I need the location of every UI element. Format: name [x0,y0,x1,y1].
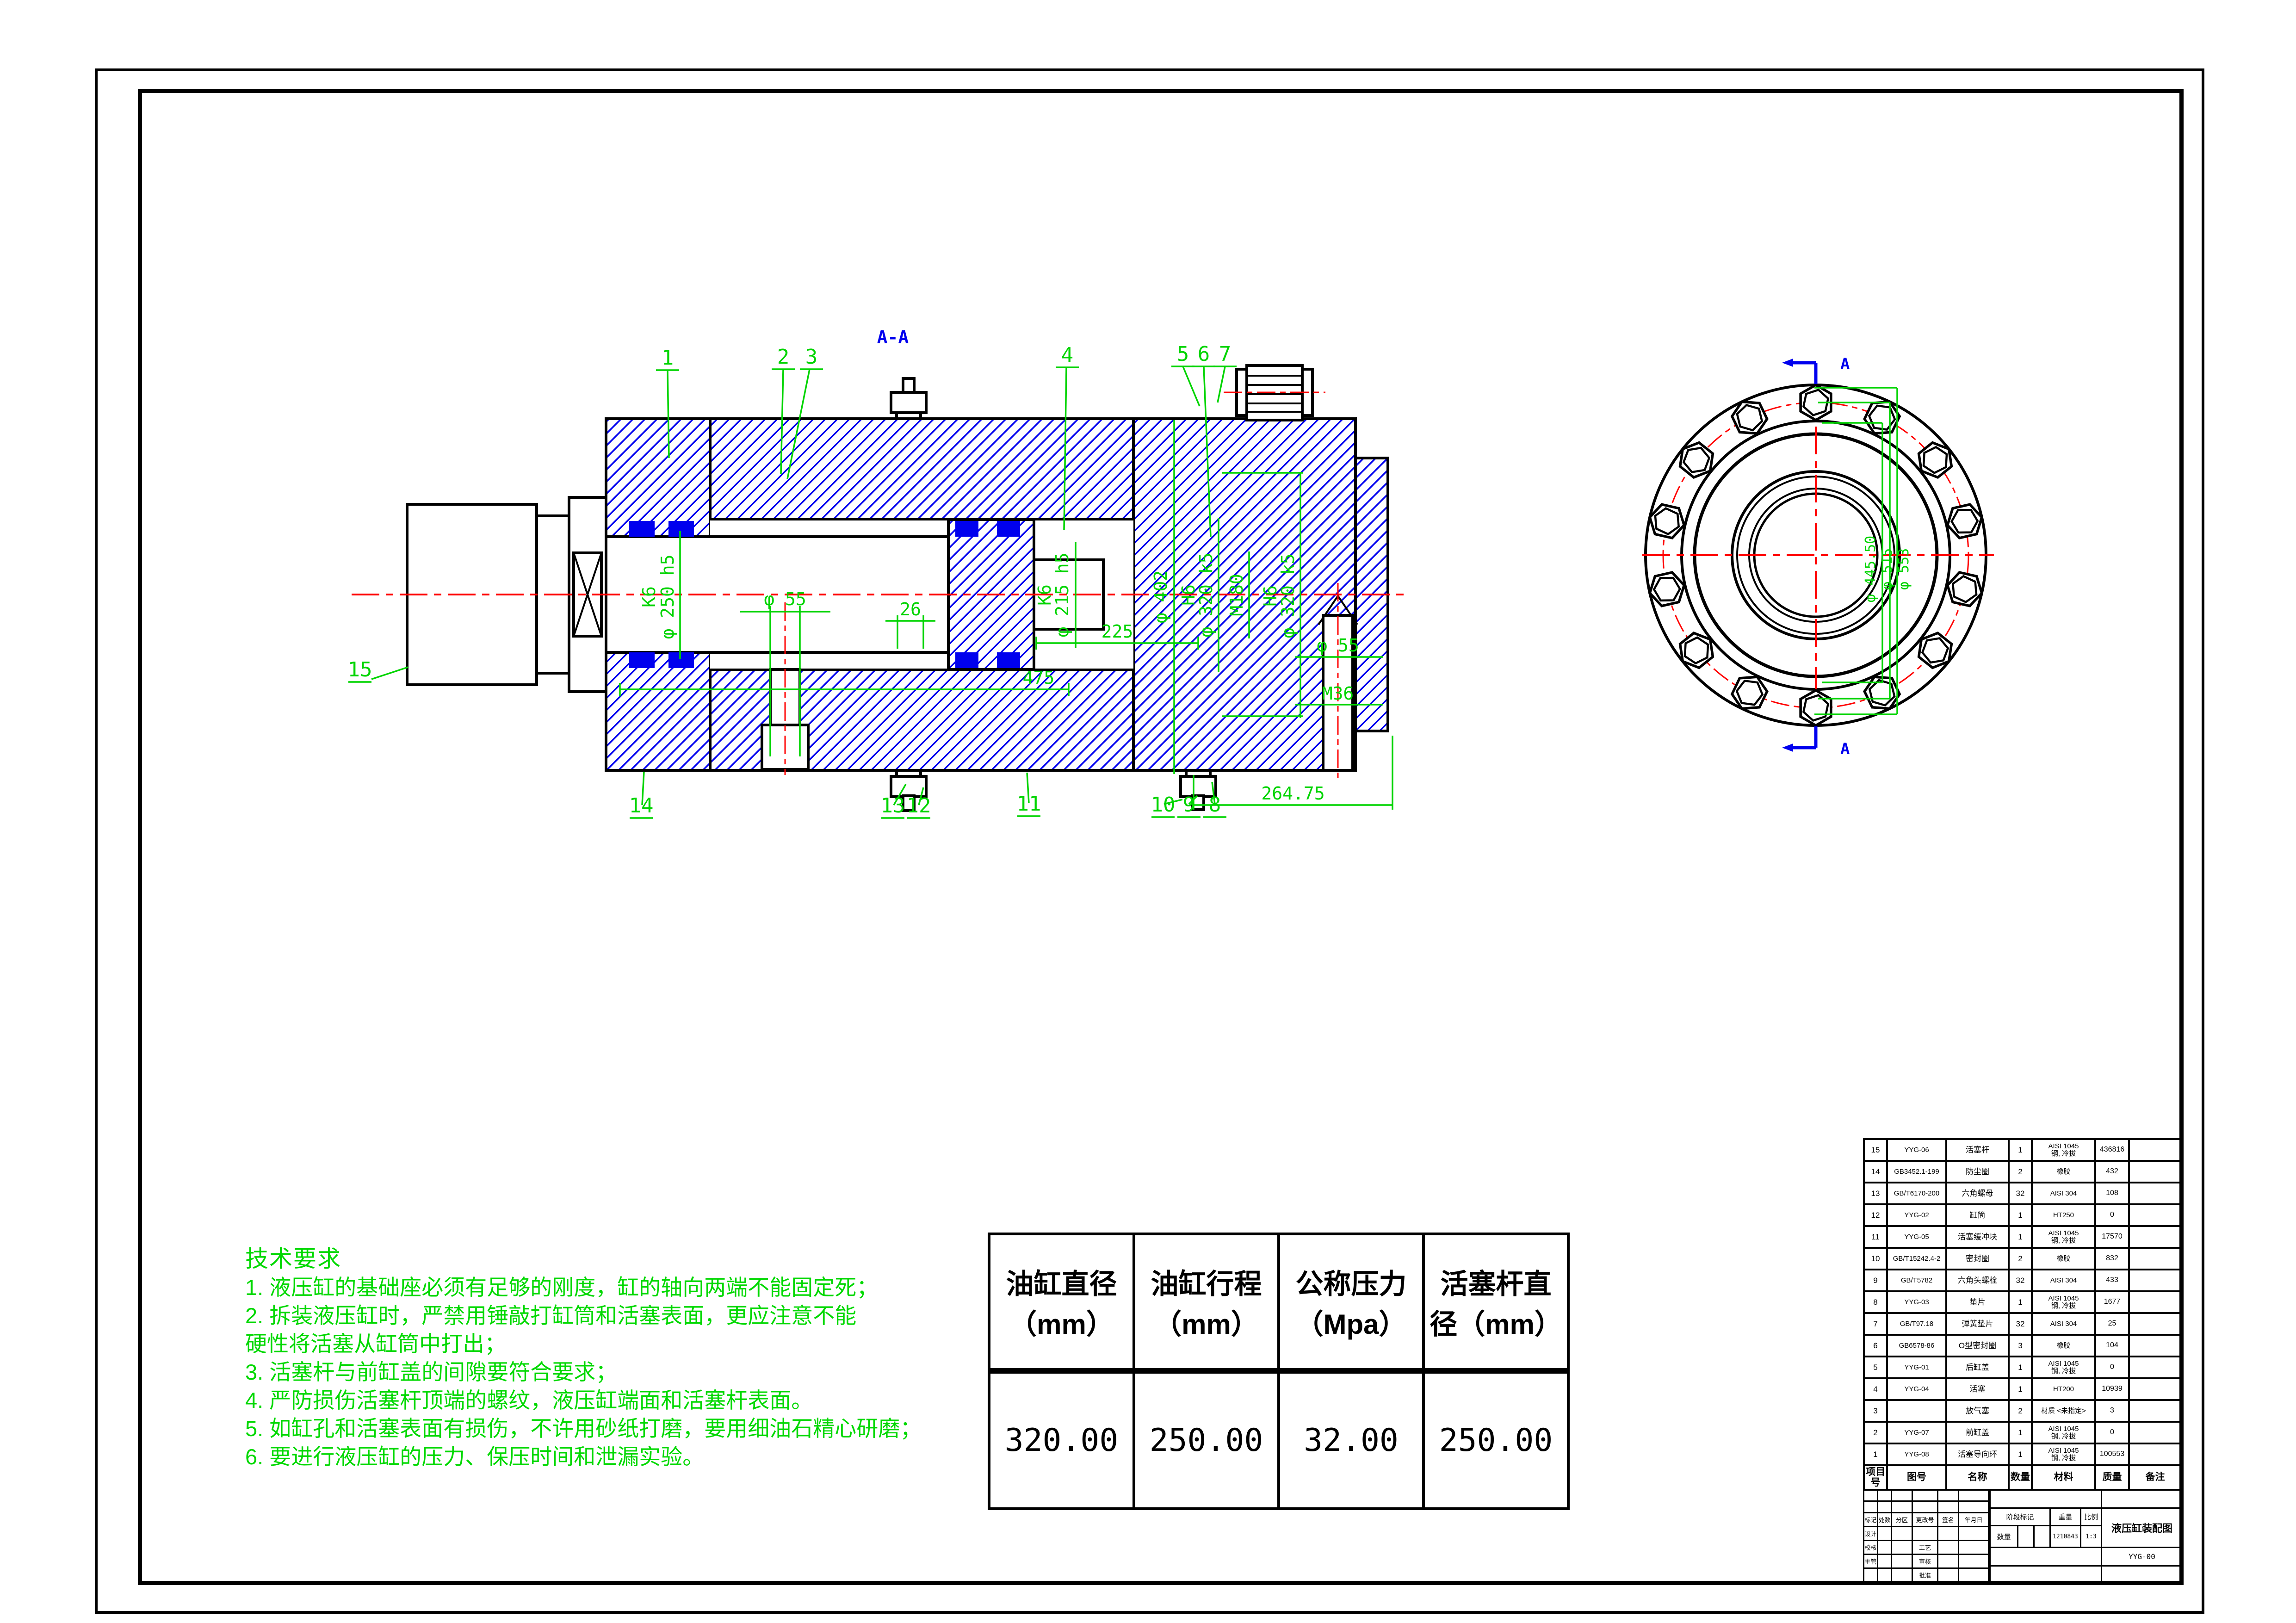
qty-label: 数量 [1990,1526,2018,1548]
hex-nut [1948,572,1982,606]
svg-text:φ 250 h5: φ 250 h5 [657,554,678,639]
bom-cell-mass: 104 [2095,1335,2129,1357]
svg-text:1: 1 [662,346,674,370]
weight-value: 1210843 [2050,1526,2081,1548]
technical-requirements: 技术要求 1. 液压缸的基础座必须有足够的刚度，缸的轴向两端不能固定死； 2. … [245,1245,995,1471]
bom-cell-name: 放气塞 [1946,1400,2009,1422]
bom-cell-no: 11 [1864,1226,1887,1248]
tech-req-title: 技术要求 [245,1245,995,1273]
bom-header-row: 项目号 图号 名称 数量 材料 质量 备注 [1864,1465,2181,1490]
bom-cell-mass: 432 [2095,1161,2129,1183]
svg-text:A: A [1840,740,1850,758]
bom-cell-material: AISI 304 [2032,1270,2095,1291]
bom-cell-no: 8 [1864,1291,1887,1313]
svg-text:13: 13 [881,794,905,818]
weight-label: 重量 [2050,1508,2081,1526]
svg-text:φ 553: φ 553 [1896,548,1912,590]
bom-cell-qty: 32 [2009,1183,2032,1204]
tech-req-line: 5. 如缸孔和活塞表面有损伤，不许用砂纸打磨，要用细油石精心研磨； [245,1414,995,1443]
drawing-number: YYG-00 [2102,1548,2183,1566]
svg-text:M36: M36 [1322,683,1354,704]
bom-cell-qty: 32 [2009,1313,2032,1335]
svg-text:10: 10 [1151,793,1176,817]
bom-cell-material: 橡胶 [2032,1248,2095,1270]
bom-cell-note [2129,1422,2181,1443]
bom-cell-material: AISI 1045 钢, 冷拔 [2032,1357,2095,1378]
bom-cell-code: GB/T15242.4-2 [1887,1248,1946,1270]
param-header-line: （Mpa） [1280,1302,1422,1342]
bom-cell-mass: 3 [2095,1400,2129,1422]
bom-cell-note [2129,1400,2181,1422]
bom-cell-mass: 108 [2095,1183,2129,1204]
bom-cell-note [2129,1378,2181,1400]
bom-cell-code: YYG-02 [1887,1204,1946,1226]
bom-cell-code: YYG-08 [1887,1443,1946,1465]
bom-body: 15YYG-06活塞杆1AISI 1045 钢, 冷拔43681614GB345… [1864,1139,2181,1465]
svg-text:φ 320 k5: φ 320 k5 [1278,553,1298,638]
tech-req-line: 3. 活塞杆与前缸盖的间隙要符合要求； [245,1358,995,1386]
bom-row: 15YYG-06活塞杆1AISI 1045 钢, 冷拔436816 [1864,1139,2181,1161]
param-header: 活塞杆直 径（mm） [1423,1234,1568,1371]
bom-cell-code: GB3452.1-199 [1887,1161,1946,1183]
bom-cell-name: 垫片 [1946,1291,2009,1313]
svg-text:φ 445.50: φ 445.50 [1863,536,1879,603]
bom-cell-material: HT200 [2032,1378,2095,1400]
stage-label: 阶段标记 [1990,1508,2050,1526]
bom-cell-no: 4 [1864,1378,1887,1400]
svg-text:12: 12 [907,794,931,818]
svg-text:4: 4 [1061,343,1074,367]
svg-text:3: 3 [805,345,818,369]
sign-label: 工艺 [1912,1541,1938,1555]
title-block-right: 阶段标记 重量 比例 液压缸装配图 数量 1210843 1:3 YYG-00 [1989,1489,2183,1583]
bom-cell-mass: 0 [2095,1422,2129,1443]
bom-cell-code: GB/T6170-200 [1887,1183,1946,1204]
rev-header: 签名 [1938,1513,1959,1527]
bom-row: 10GB/T15242.4-2密封圈2橡胶832 [1864,1248,2181,1270]
param-header-line: 油缸直径 [990,1262,1133,1302]
svg-text:φ 55: φ 55 [764,589,806,609]
drawing-title: 液压缸装配图 [2102,1508,2183,1548]
svg-text:15: 15 [348,658,372,681]
bom-cell-note [2129,1183,2181,1204]
param-value: 250.00 [1134,1371,1279,1509]
bom-cell-name: 活塞杆 [1946,1139,2009,1161]
cylinder-end-view: φ 445.50 φ 515 φ 553 A A [1642,352,2128,814]
bom-cell-code: YYG-07 [1887,1422,1946,1443]
bom-cell-no: 14 [1864,1161,1887,1183]
svg-text:M180: M180 [1226,574,1247,616]
svg-text:9: 9 [1183,793,1195,817]
bom-cell-no: 2 [1864,1422,1887,1443]
bom-cell-material: AISI 1045 钢, 冷拔 [2032,1443,2095,1465]
bom-cell-no: 15 [1864,1139,1887,1161]
hex-nut [1948,504,1982,538]
bom-cell-qty: 32 [2009,1270,2032,1291]
bom-cell-note [2129,1313,2181,1335]
rev-header: 分区 [1892,1513,1912,1527]
bom-cell-mass: 433 [2095,1270,2129,1291]
hydraulic-cylinder-section-view: A-A [324,319,1434,824]
bom-row: 7GB/T97.18弹簧垫片32AISI 30425 [1864,1313,2181,1335]
svg-text:225: 225 [1102,621,1133,642]
bom-cell-note [2129,1248,2181,1270]
bom-cell-qty: 1 [2009,1226,2032,1248]
bom-cell-name: 防尘圈 [1946,1161,2009,1183]
revision-table: 标记 处数 分区 更改号 签名 年月日 设计 校核 工艺 主管 审核 批准 [1863,1489,1989,1583]
bom-cell-note [2129,1270,2181,1291]
bom-row: 11YYG-05活塞缓冲块1AISI 1045 钢, 冷拔17570 [1864,1226,2181,1248]
bom-cell-qty: 1 [2009,1378,2032,1400]
svg-text:φ 515: φ 515 [1879,548,1895,590]
bom-cell-code: YYG-05 [1887,1226,1946,1248]
param-header: 油缸行程 （mm） [1134,1234,1279,1371]
bom-cell-code: GB6578-86 [1887,1335,1946,1357]
bom-cell-material: AISI 304 [2032,1313,2095,1335]
param-value: 32.00 [1279,1371,1423,1509]
bom-cell-name: O型密封圈 [1946,1335,2009,1357]
svg-text:K6: K6 [639,586,659,607]
param-header-line: 公称压力 [1280,1262,1422,1302]
bom-cell-note [2129,1291,2181,1313]
bom-cell-name: 活塞 [1946,1378,2009,1400]
bom-cell-code [1887,1400,1946,1422]
param-header-line: （mm） [990,1302,1133,1342]
bom-row: 9GB/T5782六角头螺栓32AISI 304433 [1864,1270,2181,1291]
bom-cell-note [2129,1226,2181,1248]
hex-nut [1650,504,1684,538]
svg-text:14: 14 [629,794,654,818]
bom-cell-mass: 17570 [2095,1226,2129,1248]
bom-cell-note [2129,1335,2181,1357]
title-block: 标记 处数 分区 更改号 签名 年月日 设计 校核 工艺 主管 审核 批准 [1863,1489,2180,1581]
param-header-line: （mm） [1135,1302,1277,1342]
param-value: 320.00 [989,1371,1134,1509]
bom-header-cell: 项目号 [1864,1465,1887,1490]
bom-cell-name: 弹簧垫片 [1946,1313,2009,1335]
svg-text:φ 320 k5: φ 320 k5 [1196,552,1216,637]
bom-row: 14GB3452.1-199防尘圈2橡胶432 [1864,1161,2181,1183]
bill-of-materials: 15YYG-06活塞杆1AISI 1045 钢, 冷拔43681614GB345… [1863,1138,2182,1491]
hex-nut [1732,402,1767,434]
bom-cell-no: 1 [1864,1443,1887,1465]
bom-header-cell: 质量 [2095,1465,2129,1490]
bom-cell-qty: 3 [2009,1335,2032,1357]
tech-req-line: 1. 液压缸的基础座必须有足够的刚度，缸的轴向两端不能固定死； [245,1273,995,1301]
bom-cell-no: 5 [1864,1357,1887,1378]
cylinder-parameter-table: 油缸直径 （mm） 油缸行程 （mm） 公称压力 （Mpa） 活塞杆直 径（mm… [988,1233,1570,1510]
rev-header: 更改号 [1912,1513,1938,1527]
hex-nut [1801,690,1831,725]
bom-cell-material: HT250 [2032,1204,2095,1226]
bom-cell-material: AISI 1045 钢, 冷拔 [2032,1422,2095,1443]
bom-cell-qty: 1 [2009,1139,2032,1161]
bom-header-cell: 名称 [1946,1465,2009,1490]
bom-row: 1YYG-08活塞导向环1AISI 1045 钢, 冷拔100553 [1864,1443,2181,1465]
sign-label: 主管 [1864,1555,1878,1568]
bom-cell-qty: 1 [2009,1291,2032,1313]
bom-cell-note [2129,1161,2181,1183]
bom-cell-material: AISI 1045 钢, 冷拔 [2032,1139,2095,1161]
bom-cell-note [2129,1443,2181,1465]
bom-row: 3放气塞2材质 <未指定>3 [1864,1400,2181,1422]
bom-cell-name: 密封圈 [1946,1248,2009,1270]
bom-cell-code: YYG-04 [1887,1378,1946,1400]
bom-cell-material: AISI 1045 钢, 冷拔 [2032,1226,2095,1248]
bom-cell-no: 7 [1864,1313,1887,1335]
hex-nut [1680,443,1713,477]
param-header-line: 油缸行程 [1135,1262,1277,1302]
bom-cell-name: 六角螺母 [1946,1183,2009,1204]
bom-cell-note [2129,1204,2181,1226]
bom-row: 2YYG-07前缸盖1AISI 1045 钢, 冷拔0 [1864,1422,2181,1443]
bom-cell-mass: 25 [2095,1313,2129,1335]
scale-value: 1:3 [2081,1526,2102,1548]
bom-cell-qty: 2 [2009,1161,2032,1183]
bom-cell-mass: 832 [2095,1248,2129,1270]
svg-text:A: A [1840,355,1850,373]
svg-text:26: 26 [900,599,921,619]
svg-text:φ 55: φ 55 [1317,635,1359,656]
rev-header: 处数 [1878,1513,1892,1527]
bom-cell-name: 后缸盖 [1946,1357,2009,1378]
cad-drawing-sheet: { "colors":{ "dimension_green":"#00d400"… [0,0,2296,1623]
hex-nut [1650,572,1684,606]
bom-cell-qty: 1 [2009,1443,2032,1465]
bom-row: 13GB/T6170-200六角螺母32AISI 304108 [1864,1183,2181,1204]
tech-req-line: 硬性将活塞从缸筒中打出； [245,1330,995,1358]
bom-cell-mass: 0 [2095,1357,2129,1378]
bom-cell-qty: 1 [2009,1204,2032,1226]
bom-cell-name: 前缸盖 [1946,1422,2009,1443]
bom-cell-name: 活塞缓冲块 [1946,1226,2009,1248]
bom-cell-no: 3 [1864,1400,1887,1422]
bom-cell-code: YYG-06 [1887,1139,1946,1161]
section-label: A-A [877,327,909,347]
sign-label: 审核 [1912,1555,1938,1568]
hex-nut [1732,677,1767,709]
bom-cell-name: 六角头螺栓 [1946,1270,2009,1291]
param-header-line: 活塞杆直 [1425,1262,1567,1302]
bom-header-cell: 备注 [2129,1465,2181,1490]
oil-port-boss [1224,365,1325,420]
param-header-line: 径（mm） [1425,1302,1567,1342]
bom-row: 8YYG-03垫片1AISI 1045 钢, 冷拔1677 [1864,1291,2181,1313]
bom-cell-no: 9 [1864,1270,1887,1291]
bom-cell-code: YYG-01 [1887,1357,1946,1378]
svg-text:5: 5 [1177,342,1189,366]
sign-label: 设计 [1864,1527,1878,1541]
bom-cell-no: 6 [1864,1335,1887,1357]
bom-cell-qty: 1 [2009,1422,2032,1443]
svg-text:8: 8 [1209,793,1221,817]
svg-text:475: 475 [1023,668,1055,688]
bom-cell-code: YYG-03 [1887,1291,1946,1313]
bom-cell-mass: 100553 [2095,1443,2129,1465]
bom-cell-mass: 10939 [2095,1378,2129,1400]
bom-cell-material: 橡胶 [2032,1335,2095,1357]
param-value: 250.00 [1423,1371,1568,1509]
bom-cell-no: 13 [1864,1183,1887,1204]
tech-req-line: 6. 要进行液压缸的压力、保压时间和泄漏实验。 [245,1443,995,1471]
bom-header-cell: 材料 [2032,1465,2095,1490]
scale-label: 比例 [2081,1508,2102,1526]
bom-cell-mass: 436816 [2095,1139,2129,1161]
bom-cell-note [2129,1357,2181,1378]
bom-row: 4YYG-04活塞1HT20010939 [1864,1378,2181,1400]
svg-text:φ 215 h5: φ 215 h5 [1052,552,1072,637]
tech-req-line: 2. 拆装液压缸时，严禁用锤敲打缸筒和活塞表面，更应注意不能 [245,1301,995,1330]
bom-cell-material: 橡胶 [2032,1161,2095,1183]
svg-text:2: 2 [777,345,790,369]
bom-cell-code: GB/T5782 [1887,1270,1946,1291]
bom-row: 6GB6578-86O型密封圈3橡胶104 [1864,1335,2181,1357]
sign-label: 校核 [1864,1541,1878,1555]
bom-cell-mass: 1677 [2095,1291,2129,1313]
param-header: 油缸直径 （mm） [989,1234,1134,1371]
bom-cell-material: AISI 304 [2032,1183,2095,1204]
bom-cell-mass: 0 [2095,1204,2129,1226]
svg-text:7: 7 [1219,342,1232,366]
bom-cell-qty: 2 [2009,1248,2032,1270]
bom-cell-code: GB/T97.18 [1887,1313,1946,1335]
tech-req-line: 4. 严防损伤活塞杆顶端的螺纹，液压缸端面和活塞杆表面。 [245,1386,995,1414]
bom-cell-material: AISI 1045 钢, 冷拔 [2032,1291,2095,1313]
bom-cell-name: 活塞导向环 [1946,1443,2009,1465]
bom-cell-name: 缸筒 [1946,1204,2009,1226]
sign-label: 批准 [1912,1568,1938,1582]
bom-cell-no: 12 [1864,1204,1887,1226]
svg-text:264.75: 264.75 [1261,783,1324,804]
bom-cell-no: 10 [1864,1248,1887,1270]
rev-header: 标记 [1864,1513,1878,1527]
bom-cell-note [2129,1139,2181,1161]
svg-text:φ 402: φ 402 [1151,570,1171,623]
param-header: 公称压力 （Mpa） [1279,1234,1423,1371]
bom-cell-qty: 2 [2009,1400,2032,1422]
hex-nut [1919,633,1952,668]
bom-header-cell: 数量 [2009,1465,2032,1490]
svg-text:6: 6 [1198,342,1210,366]
bom-cell-qty: 1 [2009,1357,2032,1378]
bom-header-cell: 图号 [1887,1465,1946,1490]
rev-header: 年月日 [1959,1513,1989,1527]
bom-row: 12YYG-02缸筒1HT2500 [1864,1204,2181,1226]
bom-cell-material: 材质 <未指定> [2032,1400,2095,1422]
bom-row: 5YYG-01后缸盖1AISI 1045 钢, 冷拔0 [1864,1357,2181,1378]
